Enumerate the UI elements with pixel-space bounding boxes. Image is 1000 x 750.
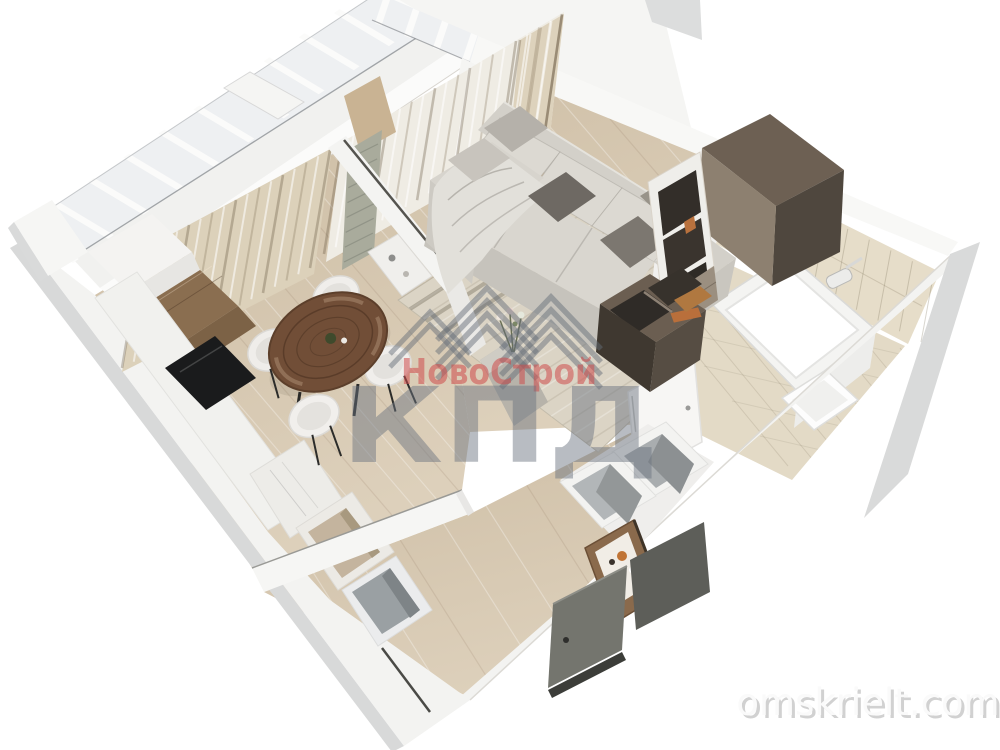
screenshot-root: НовоСтрой КПД omskrielt.com omskrielt.co… <box>0 0 1000 750</box>
watermark-kpd-text: КПД <box>341 365 659 487</box>
site-watermark: omskrielt.com omskrielt.com <box>736 681 1000 727</box>
apartment-3d-floorplan-render: НовоСтрой КПД omskrielt.com omskrielt.co… <box>0 0 1000 750</box>
console-item-icon <box>617 551 627 561</box>
door-handle-icon <box>686 406 691 411</box>
svg-text:omskrielt.com: omskrielt.com <box>736 681 999 724</box>
door-handle-icon <box>563 637 569 643</box>
